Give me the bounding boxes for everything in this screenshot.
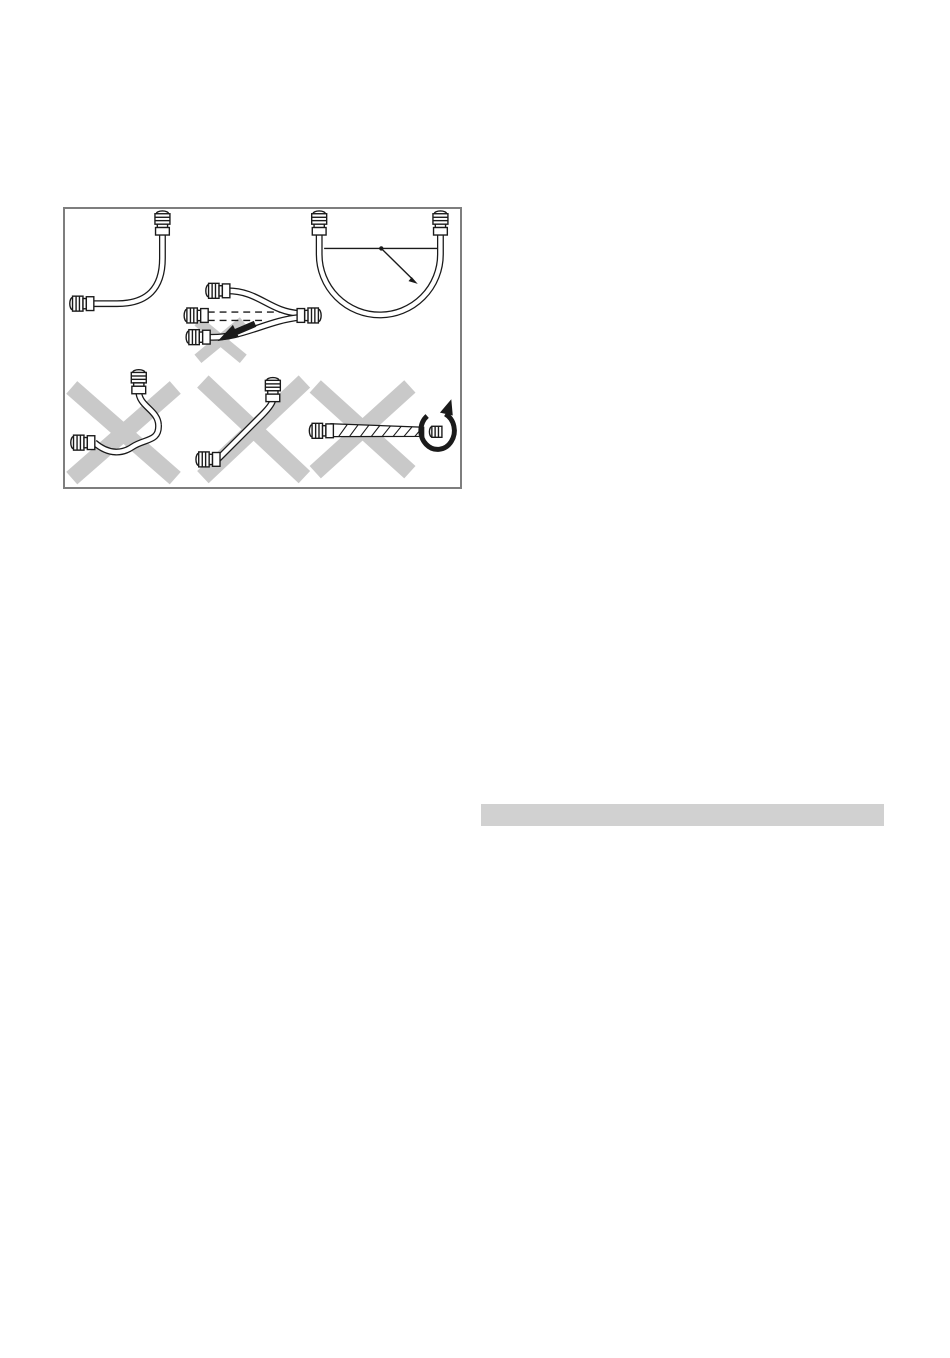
hose-fitting-icon [309, 423, 333, 438]
hose-fitting-icon [265, 378, 280, 402]
diagram-hose-under-tension [184, 283, 321, 344]
diagram-90-degree-bend [70, 211, 170, 311]
hose-fitting-icon [70, 296, 94, 311]
hose-fitting-icon [433, 211, 448, 235]
hose-fitting-icon [186, 330, 210, 345]
twist-rotation-arrow-icon [421, 399, 455, 449]
hose-fitting-icon [131, 370, 146, 394]
section-heading-bar [481, 804, 884, 826]
hose-fitting-icon [155, 211, 170, 235]
hose-fitting-icon [184, 308, 208, 323]
hose-fitting-icon [206, 283, 230, 298]
loose-nut-icon [429, 426, 442, 437]
diagram-bend-radius [312, 211, 448, 315]
hose-fitting-icon [297, 308, 321, 323]
hose-fitting-icon [312, 211, 327, 235]
hose-installation-figure [63, 207, 462, 489]
hose-installation-illustration [65, 209, 460, 487]
hose-fitting-icon [71, 435, 95, 450]
bend-radius-arrow-icon [379, 246, 418, 284]
manual-page: { "page": { "background": "#ffffff", "wi… [0, 0, 950, 1358]
hose-fitting-icon [196, 452, 220, 467]
